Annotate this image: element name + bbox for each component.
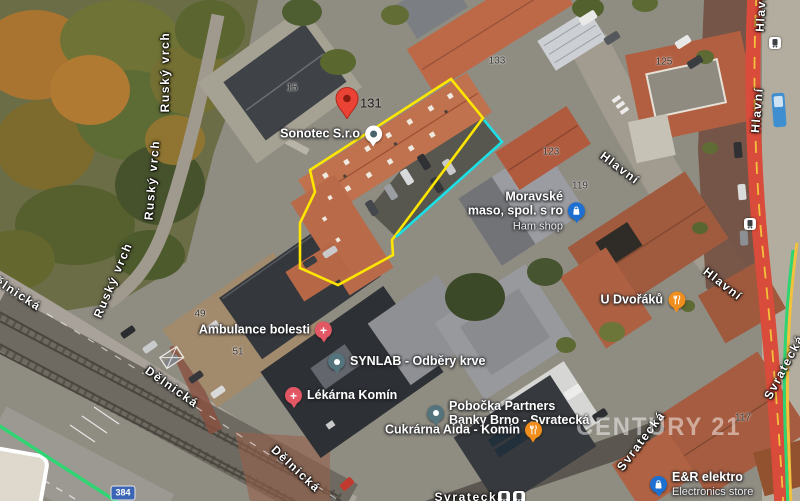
bus-icon (499, 492, 509, 501)
building-number: 125 (656, 57, 673, 68)
transit-stop-icon[interactable] (744, 218, 756, 230)
restaurant-pin-icon[interactable] (668, 292, 685, 309)
building-number: 123 (543, 147, 560, 158)
bus-icon (745, 219, 755, 229)
poi-lekarna-komin[interactable]: + Lékárna Komín (285, 387, 397, 404)
poi-label: Cukrárna Aida - Komín (385, 423, 520, 437)
shopping-bag-icon (653, 479, 664, 490)
poi-label: Lékárna Komín (307, 388, 397, 402)
poi-label: E&R elektro Electronics store (672, 470, 753, 499)
building-number: 49 (194, 309, 205, 320)
street-label-rusky-vrch: Ruský vrch (158, 32, 172, 113)
street-label-hlavni: Hlavní (753, 0, 769, 32)
transit-stop-icon[interactable] (769, 37, 781, 49)
shopping-bag-icon (571, 205, 582, 216)
building-number: 133 (489, 56, 506, 67)
place-dot-icon (370, 131, 377, 138)
building-number: 15 (286, 83, 297, 94)
hospital-pin-icon[interactable]: + (315, 322, 332, 339)
poi-subtitle: Electronics store (672, 486, 753, 498)
street-label-svratecka: Svratecká (434, 490, 505, 501)
bank-pin-icon[interactable] (427, 405, 444, 422)
poi-label: SYNLAB - Odběry krve (350, 354, 485, 368)
poi-ambulance-bolesti[interactable]: Ambulance bolesti + (199, 322, 332, 339)
transit-stop-icon[interactable] (513, 491, 525, 501)
map-marker-pin[interactable] (335, 87, 359, 119)
poi-label: Sonotec S.r.o (280, 127, 360, 141)
bus-icon (770, 38, 780, 48)
poi-label: Moravské maso, spol. s ro Ham shop (468, 189, 563, 232)
poi-sonotec[interactable]: Sonotec S.r.o (280, 126, 382, 143)
fork-knife-icon (671, 295, 682, 306)
poi-subtitle: Ham shop (513, 220, 563, 232)
poi-er-elektro[interactable]: E&R elektro Electronics store (650, 470, 753, 499)
poi-synlab[interactable]: SYNLAB - Odběry krve (328, 353, 485, 370)
poi-cukrarna-aida[interactable]: Cukrárna Aida - Komín (385, 422, 542, 439)
century21-watermark: CENTURY 21 (576, 413, 742, 442)
forest-area (0, 0, 258, 318)
shop-pin-icon[interactable] (568, 202, 585, 219)
place-dot-icon (433, 410, 439, 416)
road-shield-384: 384 (111, 487, 134, 500)
poi-label: U Dvořáků (600, 293, 663, 307)
bus (771, 93, 786, 128)
bus-icon (514, 492, 524, 501)
pharmacy-pin-icon[interactable]: + (285, 387, 302, 404)
building-number: 51 (232, 347, 243, 358)
place-dot-icon (334, 359, 340, 365)
transit-stop-icon[interactable] (498, 491, 510, 501)
shop-pin-icon[interactable] (650, 476, 667, 493)
poi-u-dvoraku[interactable]: U Dvořáků (600, 292, 685, 309)
pharmacy-cross-icon: + (290, 390, 297, 402)
poi-label: Ambulance bolesti (199, 323, 310, 337)
satellite-map[interactable]: CENTURY 21 Ruský vrch Ruský vrch Ruský v… (0, 0, 800, 501)
restaurant-pin-icon[interactable] (525, 422, 542, 439)
marker-address-number: 131 (360, 96, 382, 111)
fork-knife-icon (528, 425, 539, 436)
place-pin-icon[interactable] (365, 126, 382, 143)
poi-moravske-maso[interactable]: Moravské maso, spol. s ro Ham shop (468, 189, 585, 232)
cross-icon: + (320, 324, 327, 336)
place-pin-icon[interactable] (328, 353, 345, 370)
